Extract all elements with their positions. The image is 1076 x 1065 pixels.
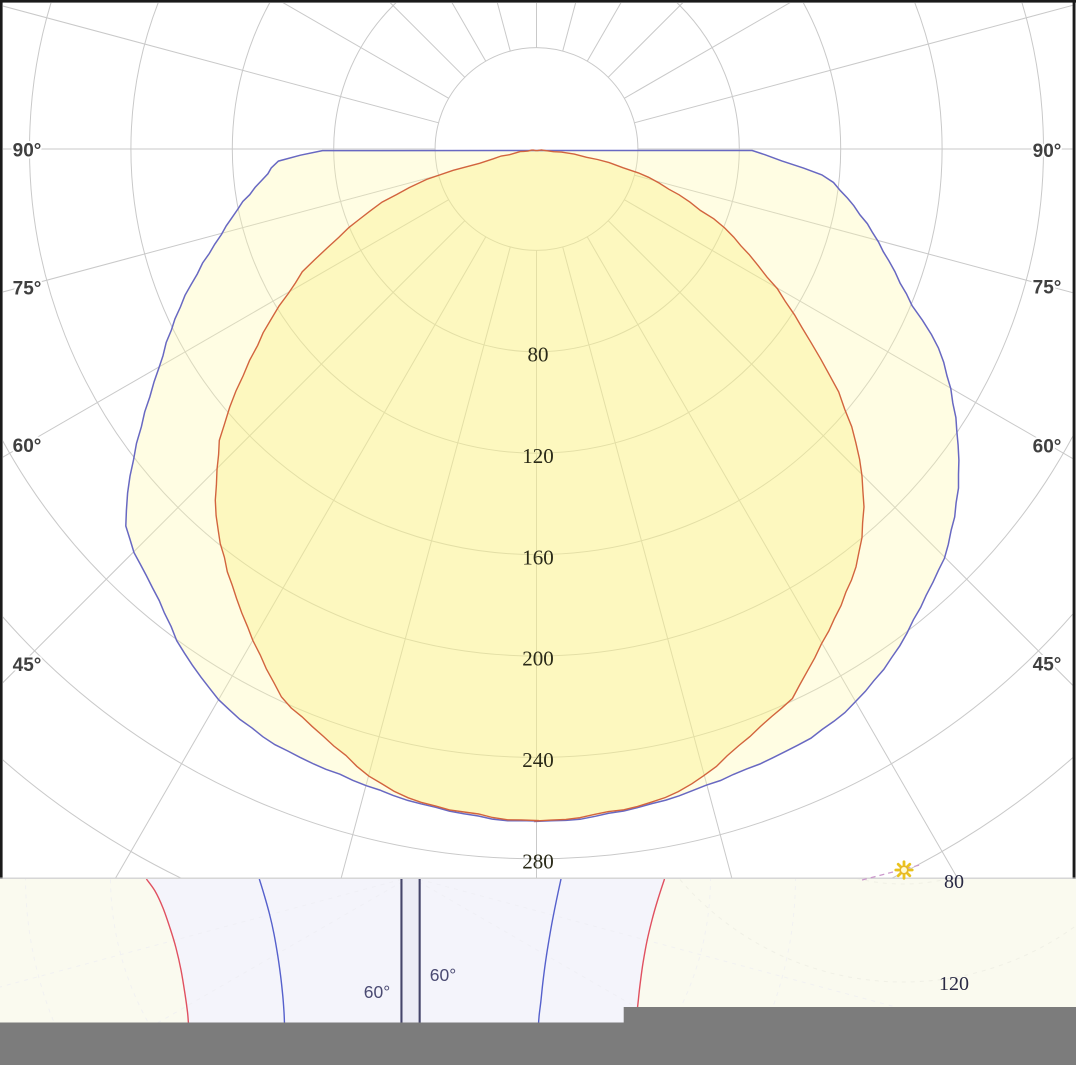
svg-text:90°: 90°	[1033, 141, 1062, 162]
svg-text:120: 120	[939, 973, 969, 995]
svg-text:75°: 75°	[1033, 278, 1062, 299]
svg-text:80: 80	[528, 343, 549, 367]
svg-text:60°: 60°	[364, 982, 390, 1002]
svg-text:45°: 45°	[1033, 655, 1062, 676]
svg-text:60°: 60°	[1033, 437, 1062, 458]
svg-text:280: 280	[522, 850, 554, 874]
svg-text:60°: 60°	[13, 436, 42, 457]
svg-text:200: 200	[522, 647, 554, 671]
svg-text:75°: 75°	[13, 279, 42, 300]
svg-text:45°: 45°	[13, 655, 42, 676]
svg-text:80: 80	[944, 871, 964, 893]
svg-text:160: 160	[522, 545, 554, 569]
svg-text:240: 240	[522, 748, 554, 772]
svg-text:90°: 90°	[13, 141, 42, 162]
svg-text:120: 120	[522, 444, 554, 468]
svg-text:60°: 60°	[430, 965, 456, 985]
